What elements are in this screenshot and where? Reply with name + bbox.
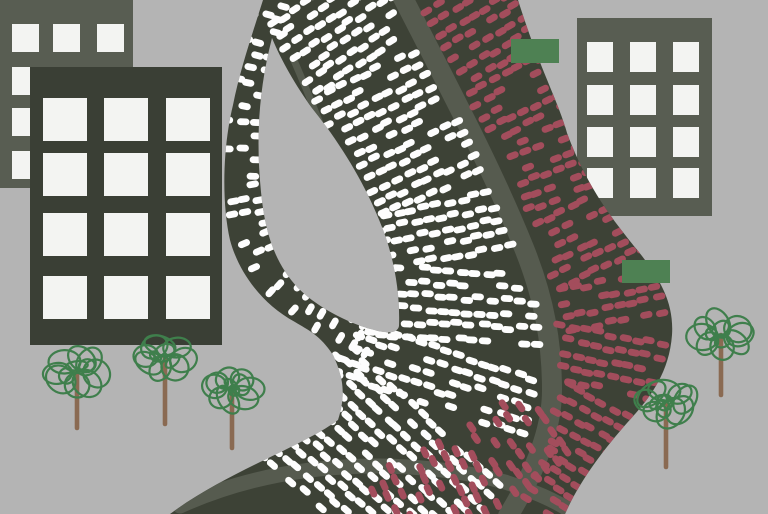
banner-middle	[622, 260, 670, 283]
window	[104, 213, 148, 256]
person-dot	[401, 320, 414, 328]
window	[104, 276, 148, 319]
window	[166, 98, 210, 141]
person-dot	[486, 312, 499, 320]
person-dot	[462, 321, 475, 329]
person-dot	[513, 297, 526, 305]
person-dot	[501, 326, 514, 334]
person-dot	[237, 118, 250, 125]
person-dot	[406, 290, 419, 298]
person-dot	[490, 323, 503, 331]
window	[673, 85, 699, 115]
person-dot	[438, 320, 451, 328]
person-dot	[518, 340, 531, 348]
person-dot	[479, 320, 492, 328]
person-dot	[448, 309, 461, 317]
person-dot	[500, 310, 513, 318]
person-dot	[419, 263, 432, 271]
person-dot	[471, 293, 484, 301]
person-dot	[457, 269, 470, 277]
illustration-aerial-march-scene	[0, 0, 768, 514]
person-dot	[426, 319, 439, 327]
window	[104, 98, 148, 141]
person-dot	[425, 307, 438, 315]
window	[166, 276, 210, 319]
person-dot	[473, 311, 486, 319]
person-dot	[446, 279, 459, 287]
person-dot	[450, 319, 463, 327]
person-dot	[468, 270, 481, 278]
window	[97, 24, 124, 52]
person-dot	[460, 297, 473, 305]
window	[104, 153, 148, 196]
person-dot	[418, 277, 431, 285]
scene-canvas	[0, 0, 768, 514]
window	[43, 98, 87, 141]
person-dot	[483, 271, 496, 279]
person-dot	[433, 282, 446, 290]
window	[43, 276, 87, 319]
person-dot	[479, 337, 492, 345]
window	[166, 213, 210, 256]
window	[12, 24, 39, 52]
person-dot	[429, 266, 442, 274]
building-right	[577, 18, 712, 216]
window	[587, 42, 613, 72]
person-dot	[236, 144, 249, 151]
person-dot	[441, 267, 454, 275]
window	[166, 153, 210, 196]
person-dot	[531, 341, 544, 349]
person-dot	[247, 173, 260, 180]
window	[630, 127, 656, 157]
window	[673, 42, 699, 72]
window	[43, 153, 87, 196]
window	[630, 85, 656, 115]
person-dot	[421, 290, 434, 298]
person-dot	[405, 279, 418, 287]
person-dot	[445, 293, 458, 301]
window	[673, 127, 699, 157]
person-dot	[516, 323, 529, 331]
window	[587, 127, 613, 157]
person-dot	[437, 308, 450, 316]
banner-top	[511, 39, 559, 63]
person-dot	[434, 293, 447, 301]
person-dot	[414, 321, 427, 329]
window	[673, 168, 699, 198]
person-dot	[511, 285, 524, 293]
person-dot	[496, 282, 509, 290]
window	[587, 85, 613, 115]
person-dot	[501, 295, 514, 303]
window	[630, 168, 656, 198]
window	[43, 213, 87, 256]
person-dot	[455, 334, 468, 342]
window	[53, 24, 80, 52]
person-dot	[438, 336, 451, 344]
person-dot	[410, 304, 423, 312]
person-dot	[460, 310, 473, 318]
person-dot	[525, 312, 538, 320]
person-dot	[486, 297, 499, 305]
person-dot	[530, 323, 543, 331]
person-dot	[527, 300, 540, 308]
window	[630, 42, 656, 72]
building-left-front	[30, 67, 222, 345]
